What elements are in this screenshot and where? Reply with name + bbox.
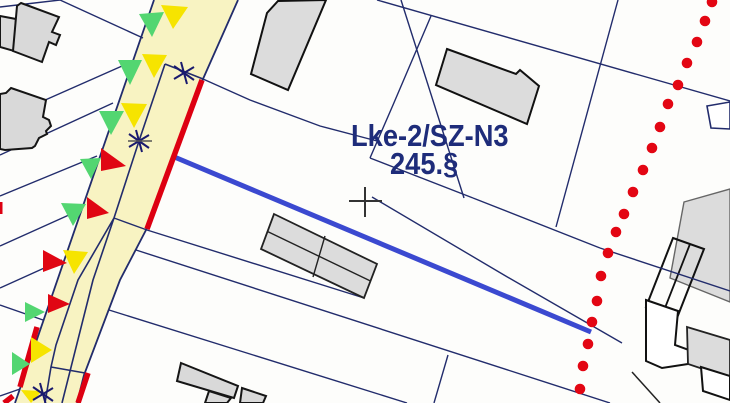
svg-text:245.§: 245.§ [390, 147, 458, 181]
